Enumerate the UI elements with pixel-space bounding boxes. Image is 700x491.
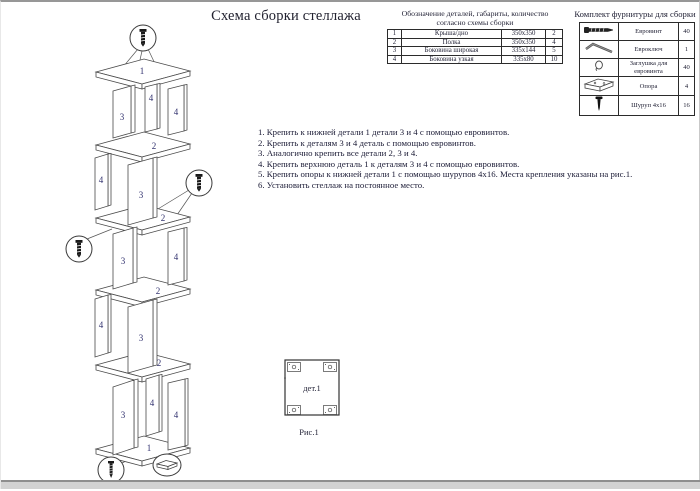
assembly-instructions: 1. Крепить к нижней детали 1 детали 3 и … bbox=[258, 127, 699, 191]
hardware-qty: 1 bbox=[679, 41, 695, 59]
part-name: Полка bbox=[402, 38, 502, 47]
part-num: 2 bbox=[388, 38, 402, 47]
label-part: 3 bbox=[139, 190, 144, 200]
label-part: 4 bbox=[99, 320, 104, 330]
part-size: 335x80 bbox=[502, 55, 546, 64]
hardware-qty: 16 bbox=[679, 96, 695, 115]
table-row: Опора 4 bbox=[580, 77, 695, 96]
parts-table-title-line2: согласно схемы сборки bbox=[384, 18, 566, 27]
support-icon bbox=[580, 77, 619, 96]
part-name: Боковина узкая bbox=[402, 55, 502, 64]
label-part: 3 bbox=[120, 112, 125, 122]
label-part: 3 bbox=[121, 410, 126, 420]
euroscrew-icon bbox=[580, 23, 619, 41]
part-qty: 4 bbox=[546, 38, 563, 47]
part-qty: 10 bbox=[546, 55, 563, 64]
label-part: 4 bbox=[150, 398, 155, 408]
part-qty: 5 bbox=[546, 47, 563, 56]
instruction-step: 2. Крепить к деталям 3 и 4 деталь с помо… bbox=[258, 138, 699, 149]
hardware-table: Евровинт 40 Евроключ 1 Заглушка для евро… bbox=[579, 22, 695, 116]
table-row: 1 Крыша/дно 350x350 2 bbox=[388, 30, 563, 39]
table-row: Евровинт 40 bbox=[580, 23, 695, 41]
label-part: 2 bbox=[156, 286, 161, 296]
part-name: Крыша/дно bbox=[402, 30, 502, 39]
page-bottom-edge bbox=[1, 480, 700, 489]
label-part: 2 bbox=[161, 213, 166, 223]
figure-detail-label: дет.1 bbox=[303, 383, 321, 393]
label-part: 3 bbox=[139, 333, 144, 343]
part-num: 4 bbox=[388, 55, 402, 64]
hardware-name: Опора bbox=[619, 77, 679, 96]
table-row: Евроключ 1 bbox=[580, 41, 695, 59]
hexkey-icon bbox=[580, 41, 619, 59]
table-row: 3 Боковина широкая 335x144 5 bbox=[388, 47, 563, 56]
parts-table-title-line1: Обозначение деталей, габариты, количеств… bbox=[384, 9, 566, 18]
hardware-name: Шуруп 4x16 bbox=[619, 96, 679, 115]
table-row: 4 Боковина узкая 335x80 10 bbox=[388, 55, 563, 64]
label-part: 3 bbox=[121, 256, 126, 266]
instruction-step: 1. Крепить к нижней детали 1 детали 3 и … bbox=[258, 127, 699, 138]
part-number-labels: 1 3 4 4 2 4 3 2 3 4 2 4 3 2 3 4 4 1 bbox=[99, 66, 179, 453]
label-part: 2 bbox=[157, 358, 162, 368]
hardware-table-title: Комплект фурнитуры для сборки bbox=[571, 9, 699, 19]
hardware-qty: 40 bbox=[679, 59, 695, 77]
parts-table-block: Обозначение деталей, габариты, количеств… bbox=[384, 9, 566, 64]
part-qty: 2 bbox=[546, 30, 563, 39]
label-part: 4 bbox=[174, 252, 179, 262]
hardware-qty: 4 bbox=[679, 77, 695, 96]
hardware-name: Евроключ bbox=[619, 41, 679, 59]
hardware-name: Евровинт bbox=[619, 23, 679, 41]
part-name: Боковина широкая bbox=[402, 47, 502, 56]
cap-icon bbox=[580, 59, 619, 77]
label-part: 4 bbox=[99, 175, 104, 185]
label-part: 2 bbox=[152, 141, 157, 151]
instruction-step: 4. Крепить верхнюю деталь 1 к деталям 3 … bbox=[258, 159, 699, 170]
hardware-qty: 40 bbox=[679, 23, 695, 41]
figure-caption: Рис.1 bbox=[299, 427, 318, 437]
label-part: 4 bbox=[174, 107, 179, 117]
page-title: Схема сборки стеллажа bbox=[191, 8, 381, 25]
label-part: 1 bbox=[140, 66, 145, 76]
table-row: 2 Полка 350x350 4 bbox=[388, 38, 563, 47]
figure-detail-1: дет.1 Рис.1 bbox=[284, 360, 339, 437]
screw-icon bbox=[580, 96, 619, 115]
part-num: 3 bbox=[388, 47, 402, 56]
hardware-name: Заглушка для евровинта bbox=[619, 59, 679, 77]
part-size: 350x350 bbox=[502, 38, 546, 47]
part-size: 350x350 bbox=[502, 30, 546, 39]
instruction-step: 3. Аналогично крепить все детали 2, 3 и … bbox=[258, 148, 699, 159]
parts-table: 1 Крыша/дно 350x350 2 2 Полка 350x350 4 … bbox=[387, 29, 563, 64]
table-row: Заглушка для евровинта 40 bbox=[580, 59, 695, 77]
table-row: Шуруп 4x16 16 bbox=[580, 96, 695, 115]
part-size: 335x144 bbox=[502, 47, 546, 56]
label-part: 4 bbox=[149, 93, 154, 103]
label-part: 1 bbox=[147, 443, 152, 453]
instruction-step: 6. Установить стеллаж на постоянное мест… bbox=[258, 180, 699, 191]
label-part: 4 bbox=[174, 410, 179, 420]
part-num: 1 bbox=[388, 30, 402, 39]
hardware-table-block: Комплект фурнитуры для сборки Евровинт 4… bbox=[571, 9, 699, 116]
instruction-step: 5. Крепить опоры к нижней детали 1 с пом… bbox=[258, 169, 699, 180]
document-page: 1 3 4 4 2 4 3 2 3 4 2 4 3 2 3 4 4 1 bbox=[0, 0, 700, 489]
